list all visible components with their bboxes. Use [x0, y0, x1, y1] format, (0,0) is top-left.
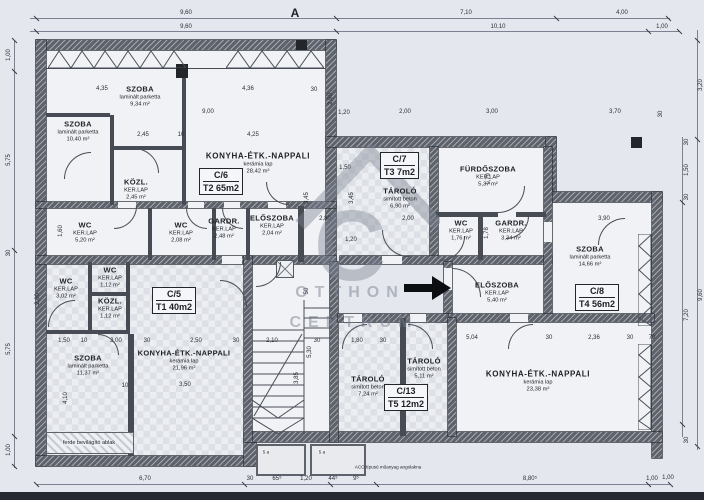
wall-top-right — [546, 192, 662, 202]
skylight-note: ferde bevilágító ablak — [62, 440, 116, 446]
room-label: TÁROLÓsimított beton6,90 m² — [383, 187, 417, 210]
dim-label: 30 — [233, 338, 240, 344]
dim-label: 2,00 — [399, 109, 411, 115]
drain-note: ACO típusú műanyag angolakna — [354, 465, 422, 470]
dim-label: 30 — [144, 338, 151, 344]
dim-label: 2,45 — [137, 132, 149, 138]
wall-stair-left — [244, 256, 252, 442]
partition-c6-4 — [46, 113, 110, 117]
unit-box-c5: C/5T1 40m2 — [152, 287, 196, 314]
dim-label: 30 — [627, 335, 634, 341]
room-label: WCKER.LAP1,12 m² — [98, 266, 122, 289]
partition-c6-5 — [148, 208, 152, 260]
room-label: ELŐSZOBAKER.LAP5,40 m² — [475, 281, 519, 304]
dim-line-top2 — [30, 31, 680, 32]
dim-line-right2 — [682, 137, 683, 437]
unit-box-c7: C/7T3 7m2 — [380, 152, 419, 179]
wall-storage-divider — [400, 318, 406, 436]
dim-label: 10 — [122, 383, 129, 389]
dim-label: 4,36 — [242, 86, 254, 92]
partition-c5-4 — [46, 330, 130, 334]
dim-label: 1,50 — [684, 164, 690, 176]
dim-label: 3,70 — [609, 109, 621, 115]
dim-label: 30 — [380, 338, 387, 344]
dim-label: 1,78 — [484, 227, 490, 239]
dim-label: 1,00 — [646, 476, 658, 482]
room-label: TÁROLÓsimított beton5,11 m² — [407, 357, 441, 380]
room-label: FÜRDŐSZOBAKER.LAP5,37 m² — [460, 165, 516, 188]
dim-label: 30 — [658, 111, 664, 118]
room-label: KONYHA-ÉTK.-NAPPALIkerámia lap21,96 m² — [138, 349, 231, 372]
dim-label: 3,90 — [598, 216, 610, 222]
dim-label: 30 — [311, 87, 318, 93]
unit-box-c6: C/6T2 65m2 — [199, 168, 243, 195]
dim-label: 2,00 — [35, 293, 41, 305]
entrance-arrow — [404, 274, 452, 302]
staircase — [252, 300, 332, 434]
dim-label: 30 — [247, 476, 254, 482]
dim-label: 1,20 — [300, 476, 312, 482]
dim-label: 30 — [546, 335, 553, 341]
room-label: SZOBAlaminált parketta11,37 m² — [67, 354, 108, 377]
chimney — [631, 137, 642, 148]
dim-label: 9⁵ — [353, 476, 359, 482]
wall-bottom-left — [36, 456, 254, 466]
wall-top-left — [36, 40, 336, 50]
dim-label: 6,70 — [139, 476, 151, 482]
dim-label: 30 — [684, 194, 690, 201]
room-label: WCKER.LAP5,20 m² — [73, 221, 97, 244]
dim-label: 1,60 — [58, 225, 64, 237]
dim-label: 4,00 — [616, 10, 628, 16]
unit-box-c13: C/13T5 12m2 — [384, 384, 428, 411]
dim-label: 1,20 — [338, 110, 350, 116]
room-label: KÖZL.KER.LAP1,12 m² — [98, 297, 122, 320]
room-label: WCKER.LAP1,76 m² — [449, 219, 473, 242]
room-label: KONYHA-ÉTK.-NAPPALIkerámia lap23,38 m² — [486, 370, 590, 393]
room-label: TÁROLÓsimított beton7,24 m² — [351, 375, 385, 398]
partition-c5-1 — [88, 262, 92, 332]
dim-label: 3,20 — [698, 79, 704, 91]
dim-label: 8,80⁵ — [523, 476, 537, 482]
wall-wc-gardr-divider — [478, 216, 483, 260]
wall-right — [652, 192, 662, 458]
dim-label: 7,20 — [684, 309, 690, 321]
dim-label: 30 — [6, 250, 12, 257]
room-label: GARDR.KER.LAP3,34 m² — [495, 219, 526, 242]
dim-label: 7,10 — [460, 10, 472, 16]
wall-bath-bottom — [436, 212, 546, 217]
dim-label: 5,04 — [466, 335, 478, 341]
wall-left — [36, 40, 46, 466]
dim-label: 10 — [178, 132, 185, 138]
dim-label: 3,50 — [179, 382, 191, 388]
dim-label: 30 — [684, 437, 690, 444]
roof-window-band-right — [226, 50, 324, 68]
dim-label: 3,00 — [486, 109, 498, 115]
partition-c6-3 — [114, 146, 182, 150]
partition-c6-1 — [110, 115, 114, 205]
dim-label: 9,60 — [180, 24, 192, 30]
dim-label: 2,50 — [190, 338, 202, 344]
dim-label: 9,00 — [202, 109, 214, 115]
dim-label: 2,36 — [588, 335, 600, 341]
dim-label: 70 — [649, 335, 656, 341]
unit-box-c8: C/8T4 56m2 — [575, 284, 619, 311]
room-label: SZOBAlaminált parketta14,66 m² — [569, 245, 610, 268]
dim-label: 1,00 — [656, 24, 668, 30]
room-label: ELŐSZOBAKER.LAP2,04 m² — [250, 214, 294, 237]
dim-label: 4,25 — [247, 132, 259, 138]
room-label: WCKER.LAP2,08 m² — [169, 221, 193, 244]
room-label: SZOBAlaminált parketta9,34 m² — [119, 85, 160, 108]
room-label: GARDR.KER.LAP2,48 m² — [208, 217, 239, 240]
room-label: SZOBAlaminált parketta10,40 m² — [57, 120, 98, 143]
wardrobe-symbols-lower — [638, 344, 652, 430]
dim-label: 30 — [684, 139, 690, 146]
dim-line-bottom — [36, 484, 670, 485]
scan-edge — [0, 492, 704, 500]
dim-line-left — [14, 40, 15, 468]
wall-kitchen-top — [444, 314, 654, 322]
dim-label: 65⁵ — [272, 476, 281, 482]
dim-line-right1 — [697, 30, 698, 450]
svg-text:C: C — [314, 190, 386, 290]
dim-label: 5,75 — [6, 343, 12, 355]
dim-label: 44⁵ — [328, 476, 337, 482]
dim-label: 9,60 — [180, 10, 192, 16]
wardrobe-symbols-upper — [638, 234, 652, 326]
stoop-label: 5 a — [262, 450, 270, 455]
room-label: KÖZL.KER.LAP2,45 m² — [124, 178, 148, 201]
dim-label: 1,50 — [58, 338, 70, 344]
dim-label: 5,75 — [6, 154, 12, 166]
door-gap — [544, 222, 552, 242]
dim-label: 9,60 — [698, 289, 704, 301]
door-gap — [222, 256, 242, 264]
dim-label: 10,10 — [490, 24, 505, 30]
partition-c5-3 — [92, 292, 126, 296]
dim-label: 2,90 — [328, 93, 334, 105]
dim-label: 10 — [81, 338, 88, 344]
roof-window-band-left — [48, 50, 186, 68]
chimney — [296, 40, 307, 50]
room-label: WCKER.LAP3,02 m² — [54, 277, 78, 300]
dim-label: 4,35 — [96, 86, 108, 92]
stoop-label: 5 a — [318, 450, 326, 455]
floor-plan: C OTTHON CENTRUM — [0, 0, 704, 500]
door-gap — [510, 314, 528, 322]
section-marker-a: A — [291, 6, 300, 20]
wall-storage-right — [448, 318, 456, 436]
dim-label: 1,00 — [662, 475, 674, 481]
partition-c5-2 — [126, 262, 130, 332]
dim-label: 4,10 — [63, 392, 69, 404]
dim-label: 1,00 — [6, 49, 12, 61]
dim-label: 1,00 — [6, 444, 12, 456]
dim-line-top1 — [30, 18, 670, 19]
